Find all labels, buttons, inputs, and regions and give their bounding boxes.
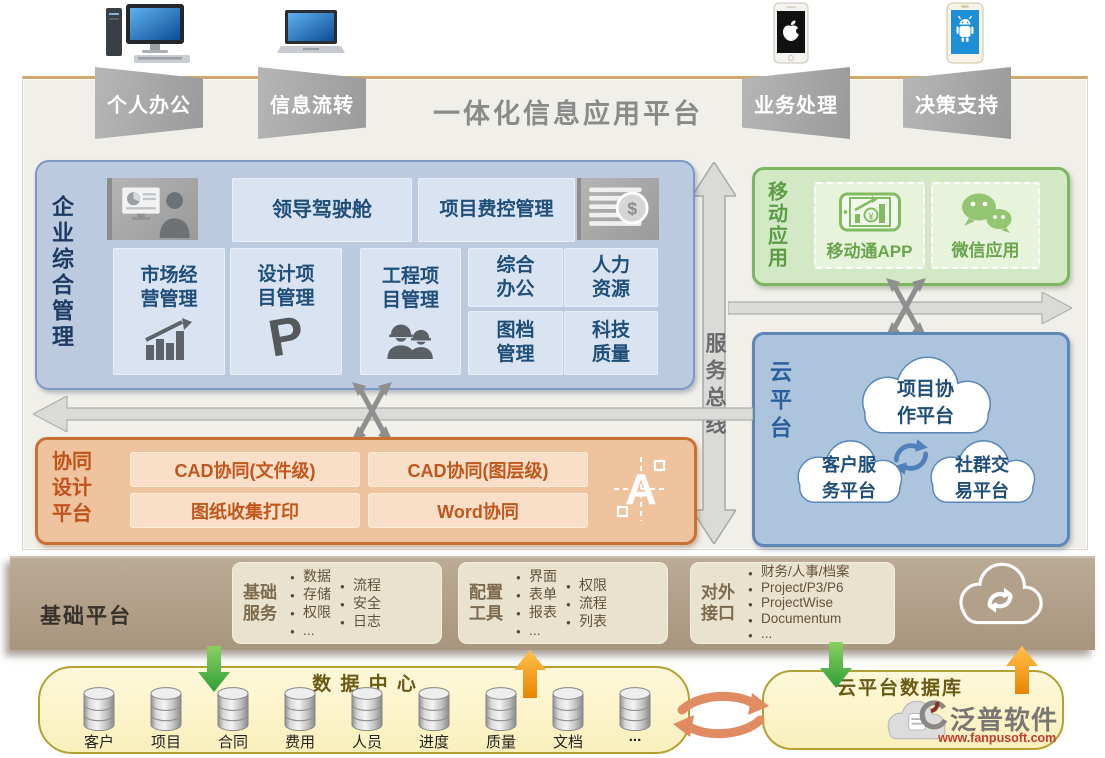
- database-icon: [616, 685, 654, 732]
- green-down-arrow: [820, 642, 852, 690]
- platform-architecture-diagram: 个人办公 信息流转 业务处理 决策支持 一体化信息应用平台 服务总线 企业综合管…: [0, 0, 1105, 758]
- database-icon: [147, 685, 185, 732]
- green-down-arrow: [198, 646, 230, 694]
- svg-text:$: $: [627, 199, 637, 219]
- cell-leadership-cockpit: 领导驾驶舱: [232, 178, 412, 242]
- exchange-cross-icon: [884, 276, 928, 338]
- cell-market-management: 市场经 营管理: [113, 248, 225, 375]
- basic-services-col2: 流程安全 日志: [340, 576, 381, 630]
- watermark-url: www.fanpusoft.com: [938, 731, 1056, 745]
- wechat-icon: [957, 191, 1015, 233]
- external-interfaces-box: 对外接口 财务/人事/档案Project/P3/P6 ProjectWiseDo…: [690, 562, 895, 644]
- collaborative-design-label: 协同设计平台: [52, 449, 96, 527]
- svg-text:A: A: [625, 465, 657, 514]
- db-label: 合同: [201, 731, 265, 752]
- executive-dashboard-icon: [107, 178, 198, 240]
- db-label: 质量: [469, 731, 533, 752]
- mobile-app-cell: ¥ 移动通APP: [814, 182, 925, 269]
- iphone-apple-icon: [773, 2, 809, 64]
- autocad-a-icon: A: [612, 450, 670, 528]
- cell-project-cost-control: 项目费控管理: [418, 178, 575, 242]
- cell-drawing-archive: 图档 管理: [468, 311, 563, 375]
- data-exchange-arrows: [670, 686, 772, 744]
- cell-word-collaboration: Word协同: [368, 493, 588, 528]
- enterprise-label: 企业综合管理: [42, 174, 80, 372]
- config-tools-col1: 界面表单 报表...: [516, 567, 557, 639]
- cloud-community-trading: 社群交易平台: [917, 440, 1047, 508]
- config-tools-col2: 权限流程 列表: [566, 576, 607, 630]
- cloud-platform-label: 云平台: [764, 350, 794, 454]
- wechat-app-cell: 微信应用: [931, 182, 1040, 269]
- cell-cad-file-level: CAD协同(文件级): [130, 452, 360, 487]
- banner-business-processing: 业务处理: [742, 67, 850, 139]
- cell-design-project-management: 设计项 目管理 P: [230, 248, 342, 375]
- banner-information-flow: 信息流转: [258, 67, 366, 139]
- money-coins-icon: $: [577, 178, 659, 240]
- database-icon: [80, 685, 118, 732]
- orange-up-arrow: [1006, 642, 1038, 694]
- db-label: 文档: [536, 731, 600, 752]
- banner-decision-support: 决策支持: [903, 67, 1011, 139]
- database-icon: [415, 685, 453, 732]
- basic-services-col1: 数据存储 权限...: [290, 567, 331, 639]
- construction-workers-icon: [385, 319, 437, 359]
- cell-tech-quality: 科技 质量: [564, 311, 658, 375]
- fanpu-logo-icon: [918, 700, 948, 730]
- desktop-computer-icon: [104, 2, 194, 64]
- svg-text:¥: ¥: [868, 211, 873, 221]
- bar-chart-growth-icon: [144, 318, 194, 360]
- cell-general-office: 综合 办公: [468, 248, 563, 307]
- android-phone-icon: [946, 2, 984, 64]
- p-logo-icon: P: [265, 310, 307, 363]
- external-interfaces-list: 财务/人事/档案Project/P3/P6 ProjectWiseDocumen…: [748, 564, 850, 642]
- cell-drawing-collect-print: 图纸收集打印: [130, 493, 360, 528]
- foundation-platform-label: 基础平台: [40, 600, 132, 630]
- basic-services-box: 基础服务 数据存储 权限... 流程安全 日志: [232, 562, 442, 644]
- exchange-cross-icon: [350, 380, 394, 442]
- laptop-icon: [277, 8, 345, 58]
- banner-personal-office: 个人办公: [95, 67, 203, 139]
- cell-human-resources: 人力 资源: [564, 248, 658, 307]
- orange-up-arrow: [514, 646, 546, 698]
- db-label: 费用: [268, 731, 332, 752]
- db-label: ...: [603, 728, 667, 745]
- cloud-customer-service: 客户服务平台: [784, 440, 914, 508]
- mobile-app-phone-icon: ¥: [839, 190, 901, 234]
- database-icon: [549, 685, 587, 732]
- cell-engineering-project-management: 工程项 目管理: [360, 248, 461, 375]
- page-title: 一体化信息应用平台: [433, 92, 703, 131]
- db-label: 项目: [134, 731, 198, 752]
- cloud-project-collaboration: 项目协作平台: [845, 356, 1006, 440]
- mobile-apps-label: 移动应用: [762, 180, 790, 270]
- cloud-sync-icon: [950, 560, 1050, 630]
- db-label: 进度: [402, 731, 466, 752]
- config-tools-box: 配置工具 界面表单 报表... 权限流程 列表: [458, 562, 668, 644]
- database-icon: [348, 685, 386, 732]
- database-icon: [281, 685, 319, 732]
- cell-cad-layer-level: CAD协同(图层级): [368, 452, 588, 487]
- db-label: 人员: [335, 731, 399, 752]
- db-label: 客户: [67, 731, 131, 752]
